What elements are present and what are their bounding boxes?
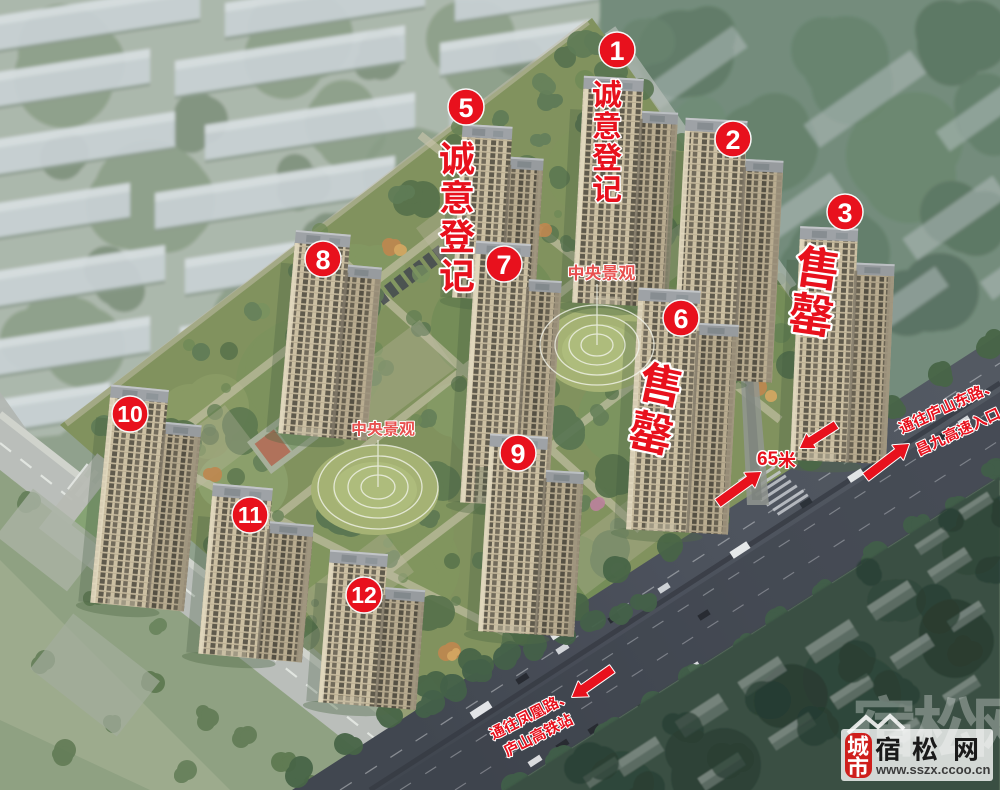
svg-text:3: 3: [837, 198, 852, 228]
svg-text:65: 65: [757, 449, 779, 470]
svg-text:1: 1: [609, 36, 624, 66]
svg-text:5: 5: [458, 93, 473, 123]
svg-text:6: 6: [673, 304, 688, 334]
svg-text:10: 10: [117, 401, 143, 427]
svg-text:11: 11: [238, 502, 263, 528]
svg-text:8: 8: [315, 245, 330, 275]
svg-text:www.sszx.ccoo.cn: www.sszx.ccoo.cn: [875, 762, 990, 777]
svg-text:9: 9: [510, 439, 525, 469]
svg-text:7: 7: [496, 250, 511, 280]
svg-text:12: 12: [351, 582, 377, 608]
svg-text:2: 2: [725, 125, 740, 155]
